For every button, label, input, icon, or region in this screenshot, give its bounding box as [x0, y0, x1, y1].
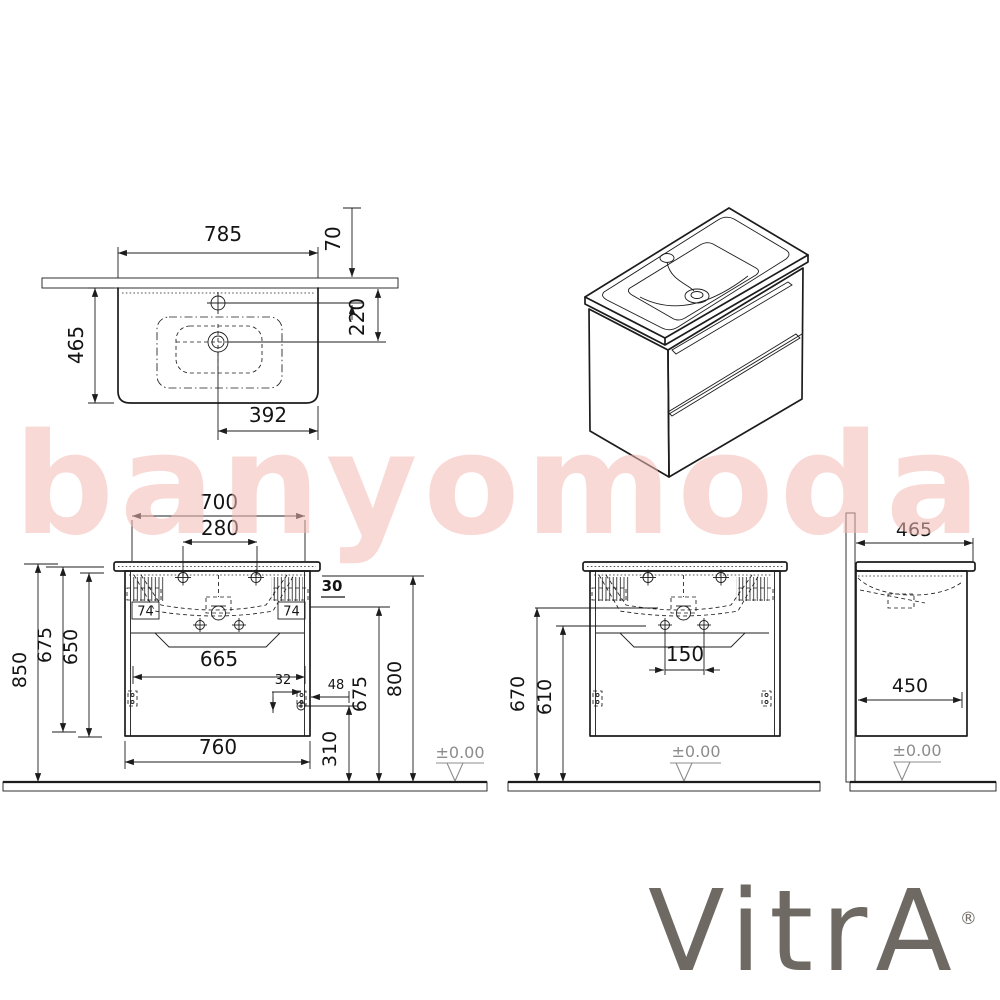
dim-total-height: 850 — [9, 652, 31, 688]
cabinet-side — [856, 571, 967, 736]
dim-fixing-holes-height: 610 — [534, 679, 556, 715]
dim-top-gap: 30 — [322, 577, 343, 595]
dim-cabinet-width: 760 — [199, 735, 237, 759]
vitra-logo: VitrA® — [648, 876, 977, 988]
dim-plan-width: 785 — [204, 222, 242, 246]
svg-text:±0.00: ±0.00 — [671, 742, 720, 761]
dim-body-height: 650 — [60, 629, 82, 665]
front-view: 74 74 700 280 30 850 675 650 665 — [9, 490, 485, 782]
wall-section-plan — [42, 278, 398, 288]
dim-plan-back-offset: 70 — [321, 226, 345, 251]
drain-trap-side — [888, 594, 914, 608]
dim-fixing-height: 675 — [349, 676, 371, 712]
technical-drawing-sheet: 785 70 465 220 392 — [0, 0, 1000, 1000]
wall-section-side — [846, 513, 855, 782]
countertop-side — [856, 562, 975, 571]
front-view-2: 150 670 610 ±0.00 — [507, 562, 787, 782]
registered-trademark-icon: ® — [960, 909, 977, 929]
dim-drain-height: 670 — [507, 676, 529, 712]
dim-bracket-left: 74 — [137, 605, 154, 620]
dim-plan-drain-from-wall: 220 — [345, 298, 369, 336]
svg-text:±0.00: ±0.00 — [435, 743, 484, 762]
datum-side: ±0.00 — [892, 741, 941, 780]
drain-plan — [176, 324, 262, 374]
dim-countertop-height: 800 — [384, 661, 406, 697]
vitra-logo-text: VitrA — [648, 867, 960, 997]
floor-lines — [3, 782, 996, 791]
dim-body-depth: 450 — [892, 675, 928, 697]
plan-view: 785 70 465 220 392 — [42, 208, 398, 440]
svg-text:±0.00: ±0.00 — [892, 741, 941, 760]
dim-handle-offset: 32 — [275, 673, 292, 688]
dim-top-depth: 465 — [896, 519, 932, 541]
dim-plan-drain-to-edge: 392 — [249, 403, 287, 427]
dim-plan-depth: 465 — [64, 326, 88, 364]
datum-front-2: ±0.00 — [670, 742, 721, 781]
dim-bracket-right: 74 — [283, 605, 300, 620]
dim-handle-side-offset: 48 — [328, 678, 345, 693]
dim-drawer-inner-width: 665 — [200, 647, 238, 671]
side-view: 465 450 ±0.00 — [846, 513, 975, 782]
iso-tap-hole — [660, 254, 674, 263]
dim-cabinet-height: 675 — [34, 627, 56, 663]
dim-fixing-hole-spacing: 150 — [666, 642, 704, 666]
dim-tap-hole-spacing: 280 — [201, 516, 239, 540]
isometric-view — [585, 208, 808, 477]
dim-basin-width: 700 — [200, 490, 238, 514]
dim-drawer-bottom-height: 310 — [319, 731, 341, 767]
tap-hole-plan — [207, 292, 229, 314]
datum-front: ±0.00 — [435, 743, 484, 781]
drawing-canvas: 785 70 465 220 392 — [0, 0, 1000, 1000]
